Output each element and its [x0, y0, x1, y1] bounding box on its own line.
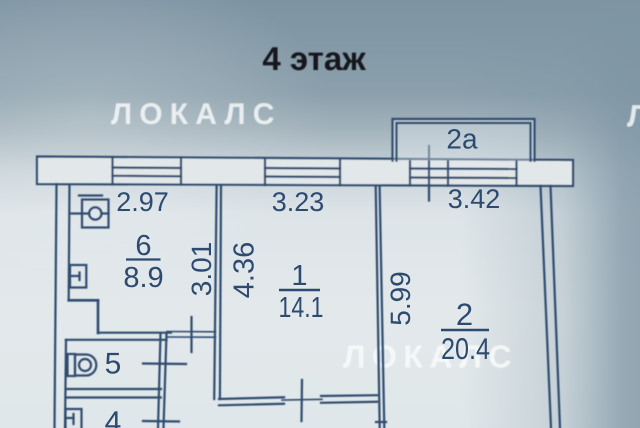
svg-text:ЛОКАЛС: ЛОКАЛС: [111, 98, 282, 131]
svg-text:20.4: 20.4: [441, 333, 490, 366]
svg-text:1: 1: [291, 260, 307, 292]
svg-text:3.01: 3.01: [186, 242, 217, 297]
svg-text:8.9: 8.9: [123, 262, 163, 294]
svg-text:4.36: 4.36: [229, 242, 261, 298]
svg-text:2а: 2а: [446, 124, 478, 155]
svg-text:5.99: 5.99: [385, 271, 416, 326]
svg-text:6: 6: [135, 230, 151, 262]
svg-text:3.23: 3.23: [272, 187, 325, 217]
svg-text:ЛОКАЛС: ЛОКАЛС: [343, 339, 518, 375]
svg-text:3.42: 3.42: [448, 184, 501, 214]
svg-text:4 этаж: 4 этаж: [262, 40, 366, 77]
svg-text:5: 5: [105, 348, 122, 381]
svg-text:2: 2: [456, 297, 473, 332]
svg-text:ЛОКАЛС: ЛОКАЛС: [627, 99, 640, 134]
svg-text:14.1: 14.1: [279, 292, 324, 324]
svg-text:4: 4: [105, 406, 122, 428]
svg-text:2.97: 2.97: [116, 187, 169, 217]
